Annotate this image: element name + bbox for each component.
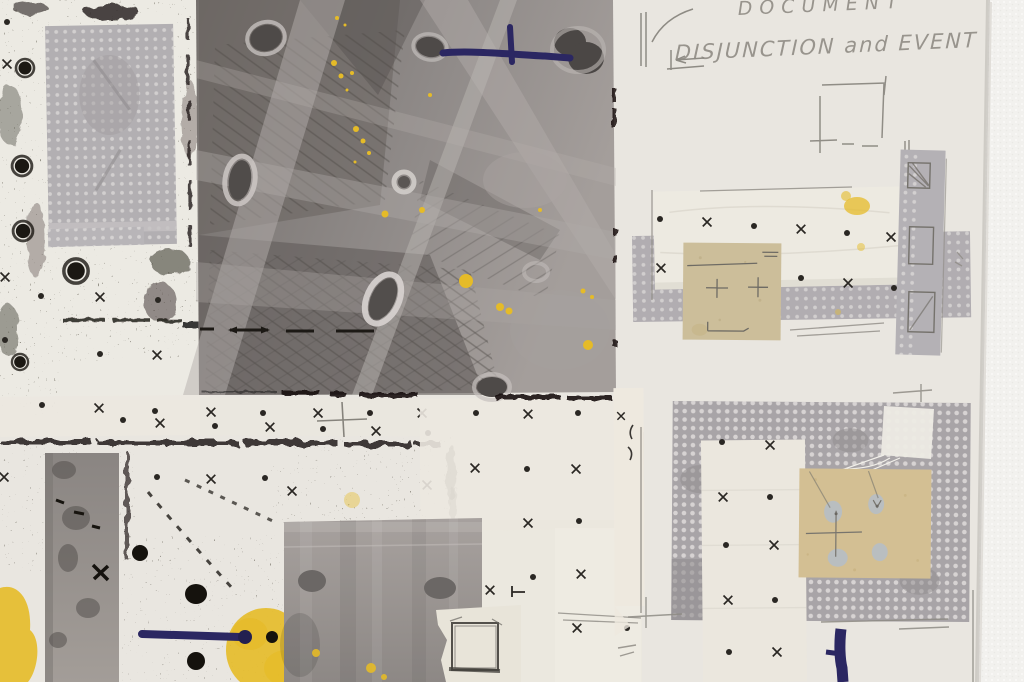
white-strip-vertical: [701, 440, 807, 682]
vertical-dotted-strip: [895, 149, 946, 355]
collage-scene: DOCUMENT DISJUNCTION and EVENT: [0, 0, 1024, 682]
tan-square-lower: [799, 468, 932, 578]
dotted-gray-card: [45, 24, 177, 246]
photo-large-aerial: [183, 0, 616, 400]
dotted-tape-scrap: [48, 227, 144, 248]
tape-patch-with-sketch: [436, 605, 521, 682]
section-top-left: [0, 0, 213, 400]
tissue-band-left: [0, 395, 210, 437]
tissue-band-right: [200, 397, 455, 436]
pencil-smudge-line: [449, 669, 500, 671]
gray-photo-strip: [45, 453, 119, 682]
artwork-photograph: DOCUMENT DISJUNCTION and EVENT: [0, 0, 1024, 682]
tan-square-upper: [683, 243, 782, 341]
tissue-strip-left-edge: [613, 388, 644, 636]
